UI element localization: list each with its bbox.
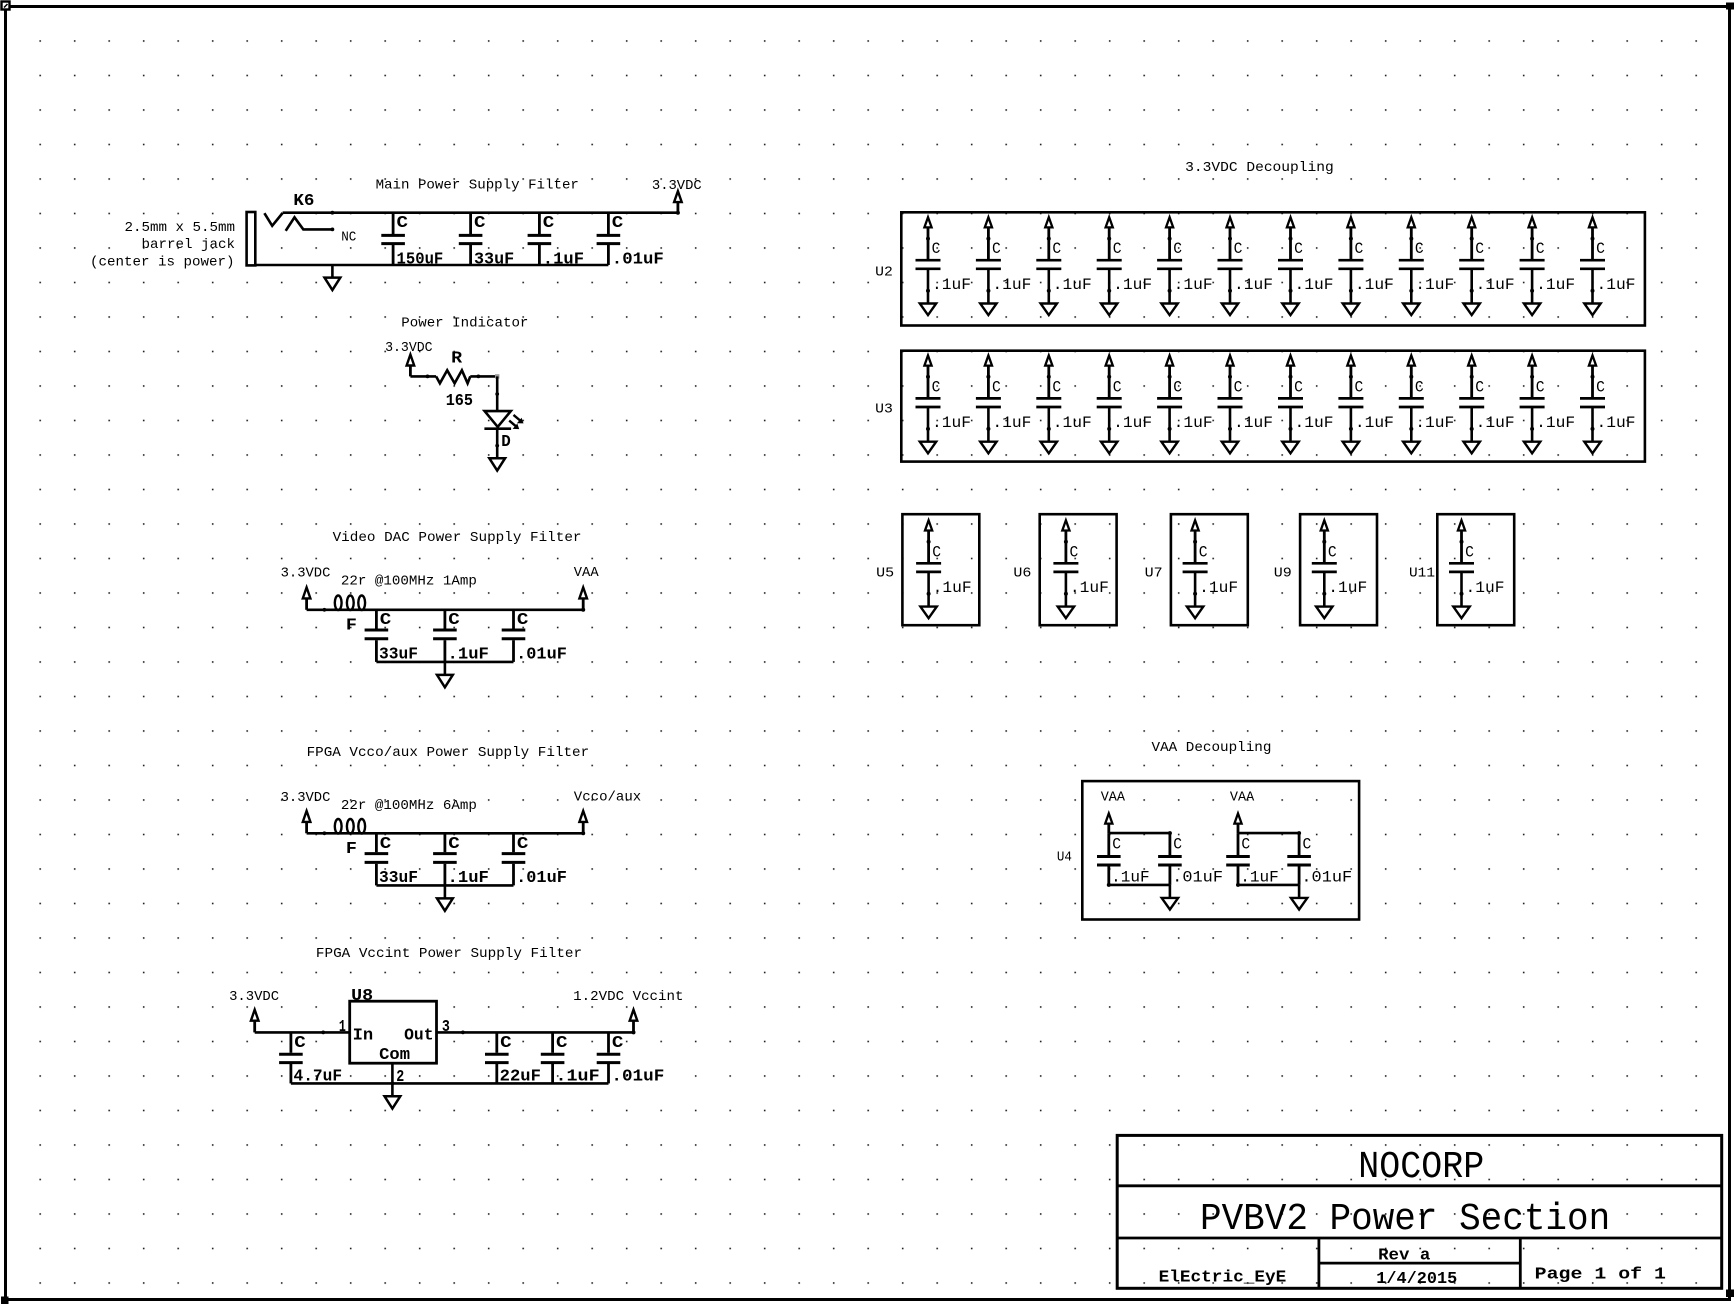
svg-text:Power Indicator: Power Indicator bbox=[401, 315, 528, 331]
svg-text:3.3VDC: 3.3VDC bbox=[229, 989, 279, 1005]
svg-text:C: C bbox=[500, 1034, 512, 1053]
svg-text:.1uF: .1uF bbox=[1328, 579, 1367, 597]
svg-text:C: C bbox=[448, 835, 460, 854]
svg-text:.1uF: .1uF bbox=[543, 251, 584, 270]
svg-text:3.3VDC: 3.3VDC bbox=[281, 566, 331, 582]
svg-text:.1uF: .1uF bbox=[1053, 414, 1092, 432]
svg-text:C: C bbox=[517, 611, 529, 630]
svg-text:.1uF: .1uF bbox=[1415, 276, 1454, 294]
svg-text:C: C bbox=[1070, 543, 1079, 561]
svg-text:.1uF: .1uF bbox=[1111, 868, 1150, 886]
svg-text:1: 1 bbox=[339, 1018, 346, 1037]
svg-text:Vcco/aux: Vcco/aux bbox=[574, 789, 641, 805]
svg-text:C: C bbox=[1415, 240, 1424, 258]
svg-text:C: C bbox=[517, 835, 529, 854]
svg-text:ElEctric_EyE: ElEctric_EyE bbox=[1159, 1269, 1287, 1288]
svg-text:C: C bbox=[1173, 240, 1182, 258]
svg-text:.1uF: .1uF bbox=[448, 646, 489, 665]
svg-text:Rev a: Rev a bbox=[1378, 1247, 1430, 1266]
svg-text:Video DAC Power Supply Filter: Video DAC Power Supply Filter bbox=[333, 530, 582, 546]
svg-text:C: C bbox=[1475, 240, 1484, 258]
svg-text:C: C bbox=[294, 1034, 306, 1053]
svg-text:C: C bbox=[1173, 836, 1182, 854]
svg-text:R: R bbox=[451, 350, 463, 369]
svg-text:C: C bbox=[932, 240, 941, 258]
svg-text:.1uF: .1uF bbox=[1113, 414, 1152, 432]
svg-text:.1uF: .1uF bbox=[1199, 579, 1238, 597]
svg-text:FPGA Vcco/aux Power Supply Fil: FPGA Vcco/aux Power Supply Filter bbox=[307, 745, 590, 761]
svg-text:.1uF: .1uF bbox=[1234, 276, 1273, 294]
svg-text:C: C bbox=[1294, 378, 1303, 396]
svg-text:FPGA Vccint Power Supply Filte: FPGA Vccint Power Supply Filter bbox=[316, 946, 582, 962]
svg-text:C: C bbox=[992, 240, 1001, 258]
svg-text:VAA: VAA bbox=[1230, 790, 1255, 806]
svg-text:C: C bbox=[1536, 240, 1545, 258]
svg-text:.1uF: .1uF bbox=[1070, 579, 1109, 597]
svg-text:1/4/2015: 1/4/2015 bbox=[1376, 1270, 1457, 1289]
svg-text:.1uF: .1uF bbox=[1295, 276, 1334, 294]
svg-text:22r @100MHz 6Amp: 22r @100MHz 6Amp bbox=[341, 798, 477, 814]
svg-text:C: C bbox=[1234, 240, 1243, 258]
svg-text:.1uF: .1uF bbox=[1053, 276, 1092, 294]
svg-text:3.3VDC: 3.3VDC bbox=[281, 790, 331, 806]
svg-text:C: C bbox=[543, 214, 555, 233]
svg-text:C: C bbox=[1173, 378, 1182, 396]
svg-text:.1uF: .1uF bbox=[1466, 579, 1505, 597]
svg-text:U7: U7 bbox=[1145, 566, 1163, 582]
svg-text:.1uF: .1uF bbox=[1536, 414, 1575, 432]
svg-text:.1uF: .1uF bbox=[1476, 276, 1515, 294]
svg-text:.1uF: .1uF bbox=[1355, 276, 1394, 294]
svg-text:C: C bbox=[1294, 240, 1303, 258]
svg-text:U5: U5 bbox=[876, 566, 894, 582]
svg-text:.1uF: .1uF bbox=[992, 414, 1031, 432]
svg-text:F: F bbox=[346, 840, 357, 859]
svg-text:(center is power): (center is power) bbox=[90, 254, 235, 270]
svg-text:33uF: 33uF bbox=[474, 251, 514, 270]
svg-text:.1uF: .1uF bbox=[448, 869, 489, 888]
svg-text:U11: U11 bbox=[1409, 566, 1435, 582]
svg-text:22uF: 22uF bbox=[500, 1067, 541, 1086]
svg-text:.1uF: .1uF bbox=[1536, 276, 1575, 294]
svg-text:.1uF: .1uF bbox=[1174, 414, 1213, 432]
svg-text:C: C bbox=[1355, 240, 1364, 258]
svg-text:.1uF: .1uF bbox=[1355, 414, 1394, 432]
svg-text:C: C bbox=[1199, 543, 1208, 561]
svg-text:In: In bbox=[353, 1026, 374, 1045]
svg-text:C: C bbox=[1052, 240, 1061, 258]
svg-text:U3: U3 bbox=[875, 402, 893, 418]
svg-text:.01uF: .01uF bbox=[516, 646, 567, 665]
svg-text:.1uF: .1uF bbox=[1295, 414, 1334, 432]
svg-text:C: C bbox=[1112, 836, 1121, 854]
svg-text:1.2VDC Vccint: 1.2VDC Vccint bbox=[573, 989, 683, 1005]
svg-text:.1uF: .1uF bbox=[1113, 276, 1152, 294]
svg-text:22r @100MHz 1Amp: 22r @100MHz 1Amp bbox=[341, 574, 477, 590]
svg-text:4.7uF: 4.7uF bbox=[294, 1067, 343, 1086]
svg-text:.01uF: .01uF bbox=[1172, 868, 1223, 886]
svg-text:.1uF: .1uF bbox=[1597, 414, 1636, 432]
svg-text:2.5mm x 5.5mm: 2.5mm x 5.5mm bbox=[125, 220, 236, 236]
svg-text:165: 165 bbox=[446, 392, 473, 411]
svg-text:33uF: 33uF bbox=[379, 646, 418, 665]
svg-text:.1uF: .1uF bbox=[992, 276, 1031, 294]
svg-text:3.3VDC Decoupling: 3.3VDC Decoupling bbox=[1185, 160, 1334, 176]
svg-text:PVBV2 Power Section: PVBV2 Power Section bbox=[1200, 1198, 1610, 1241]
svg-text:150uF: 150uF bbox=[397, 251, 444, 270]
svg-text:C: C bbox=[612, 214, 624, 233]
svg-text:.1uF: .1uF bbox=[933, 579, 972, 597]
svg-text:barrel jack: barrel jack bbox=[142, 237, 236, 253]
svg-text:C: C bbox=[1596, 378, 1605, 396]
svg-text:Com: Com bbox=[379, 1046, 410, 1065]
svg-text:C: C bbox=[1234, 378, 1243, 396]
svg-text:C: C bbox=[1355, 378, 1364, 396]
svg-text:33uF: 33uF bbox=[379, 869, 418, 888]
svg-text:C: C bbox=[1415, 378, 1424, 396]
svg-text:Main Power Supply Filter: Main Power Supply Filter bbox=[376, 178, 579, 194]
svg-text:.01uF: .01uF bbox=[611, 1067, 664, 1086]
svg-text:3: 3 bbox=[442, 1018, 450, 1037]
svg-text:U9: U9 bbox=[1274, 566, 1292, 582]
svg-text:.1uF: .1uF bbox=[1597, 276, 1636, 294]
svg-text:C: C bbox=[474, 214, 486, 233]
svg-text:.1uF: .1uF bbox=[932, 276, 971, 294]
svg-text:C: C bbox=[1113, 378, 1122, 396]
svg-text:.01uF: .01uF bbox=[516, 869, 567, 888]
svg-text:.1uF: .1uF bbox=[1240, 868, 1279, 886]
svg-text:C: C bbox=[612, 1034, 624, 1053]
svg-text:3.3VDC: 3.3VDC bbox=[385, 340, 433, 356]
svg-text:.1uF: .1uF bbox=[932, 414, 971, 432]
svg-text:NOCORP: NOCORP bbox=[1358, 1146, 1484, 1189]
svg-text:C: C bbox=[1113, 240, 1122, 258]
svg-text:C: C bbox=[1052, 378, 1061, 396]
svg-text:C: C bbox=[1328, 543, 1337, 561]
svg-text:.1uF: .1uF bbox=[1476, 414, 1515, 432]
svg-text:C: C bbox=[932, 543, 941, 561]
svg-text:C: C bbox=[1241, 836, 1250, 854]
svg-text:VAA Decoupling: VAA Decoupling bbox=[1152, 740, 1272, 756]
svg-text:F: F bbox=[346, 617, 357, 636]
svg-text:C: C bbox=[932, 378, 941, 396]
svg-text:Out: Out bbox=[404, 1026, 433, 1045]
svg-text:C: C bbox=[1303, 836, 1312, 854]
svg-text:C: C bbox=[992, 378, 1001, 396]
svg-text:VAA: VAA bbox=[1101, 790, 1126, 806]
svg-text:.01uF: .01uF bbox=[612, 251, 664, 270]
svg-text:C: C bbox=[1596, 240, 1605, 258]
svg-text:K6: K6 bbox=[293, 192, 314, 211]
svg-text:C: C bbox=[556, 1034, 568, 1053]
svg-text:U2: U2 bbox=[875, 264, 893, 280]
svg-text:C: C bbox=[448, 611, 460, 630]
svg-text:C: C bbox=[380, 835, 392, 854]
svg-text:C: C bbox=[380, 611, 392, 630]
svg-text:D: D bbox=[501, 433, 511, 452]
svg-text:NC: NC bbox=[341, 229, 356, 245]
svg-text:U6: U6 bbox=[1013, 566, 1031, 582]
svg-text:U4: U4 bbox=[1057, 850, 1072, 866]
svg-text:C: C bbox=[1465, 543, 1474, 561]
svg-text:C: C bbox=[1536, 378, 1545, 396]
svg-text:.1uF: .1uF bbox=[1174, 276, 1213, 294]
svg-text:.01uF: .01uF bbox=[1301, 868, 1352, 886]
svg-text:C: C bbox=[1475, 378, 1484, 396]
svg-text:VAA: VAA bbox=[574, 565, 599, 581]
svg-text:.1uF: .1uF bbox=[556, 1067, 600, 1086]
svg-text:C: C bbox=[397, 214, 409, 233]
svg-text:.1uF: .1uF bbox=[1234, 414, 1273, 432]
svg-text:.1uF: .1uF bbox=[1415, 414, 1454, 432]
svg-text:U8: U8 bbox=[351, 987, 373, 1006]
svg-text:Page 1 of 1: Page 1 of 1 bbox=[1535, 1266, 1666, 1285]
